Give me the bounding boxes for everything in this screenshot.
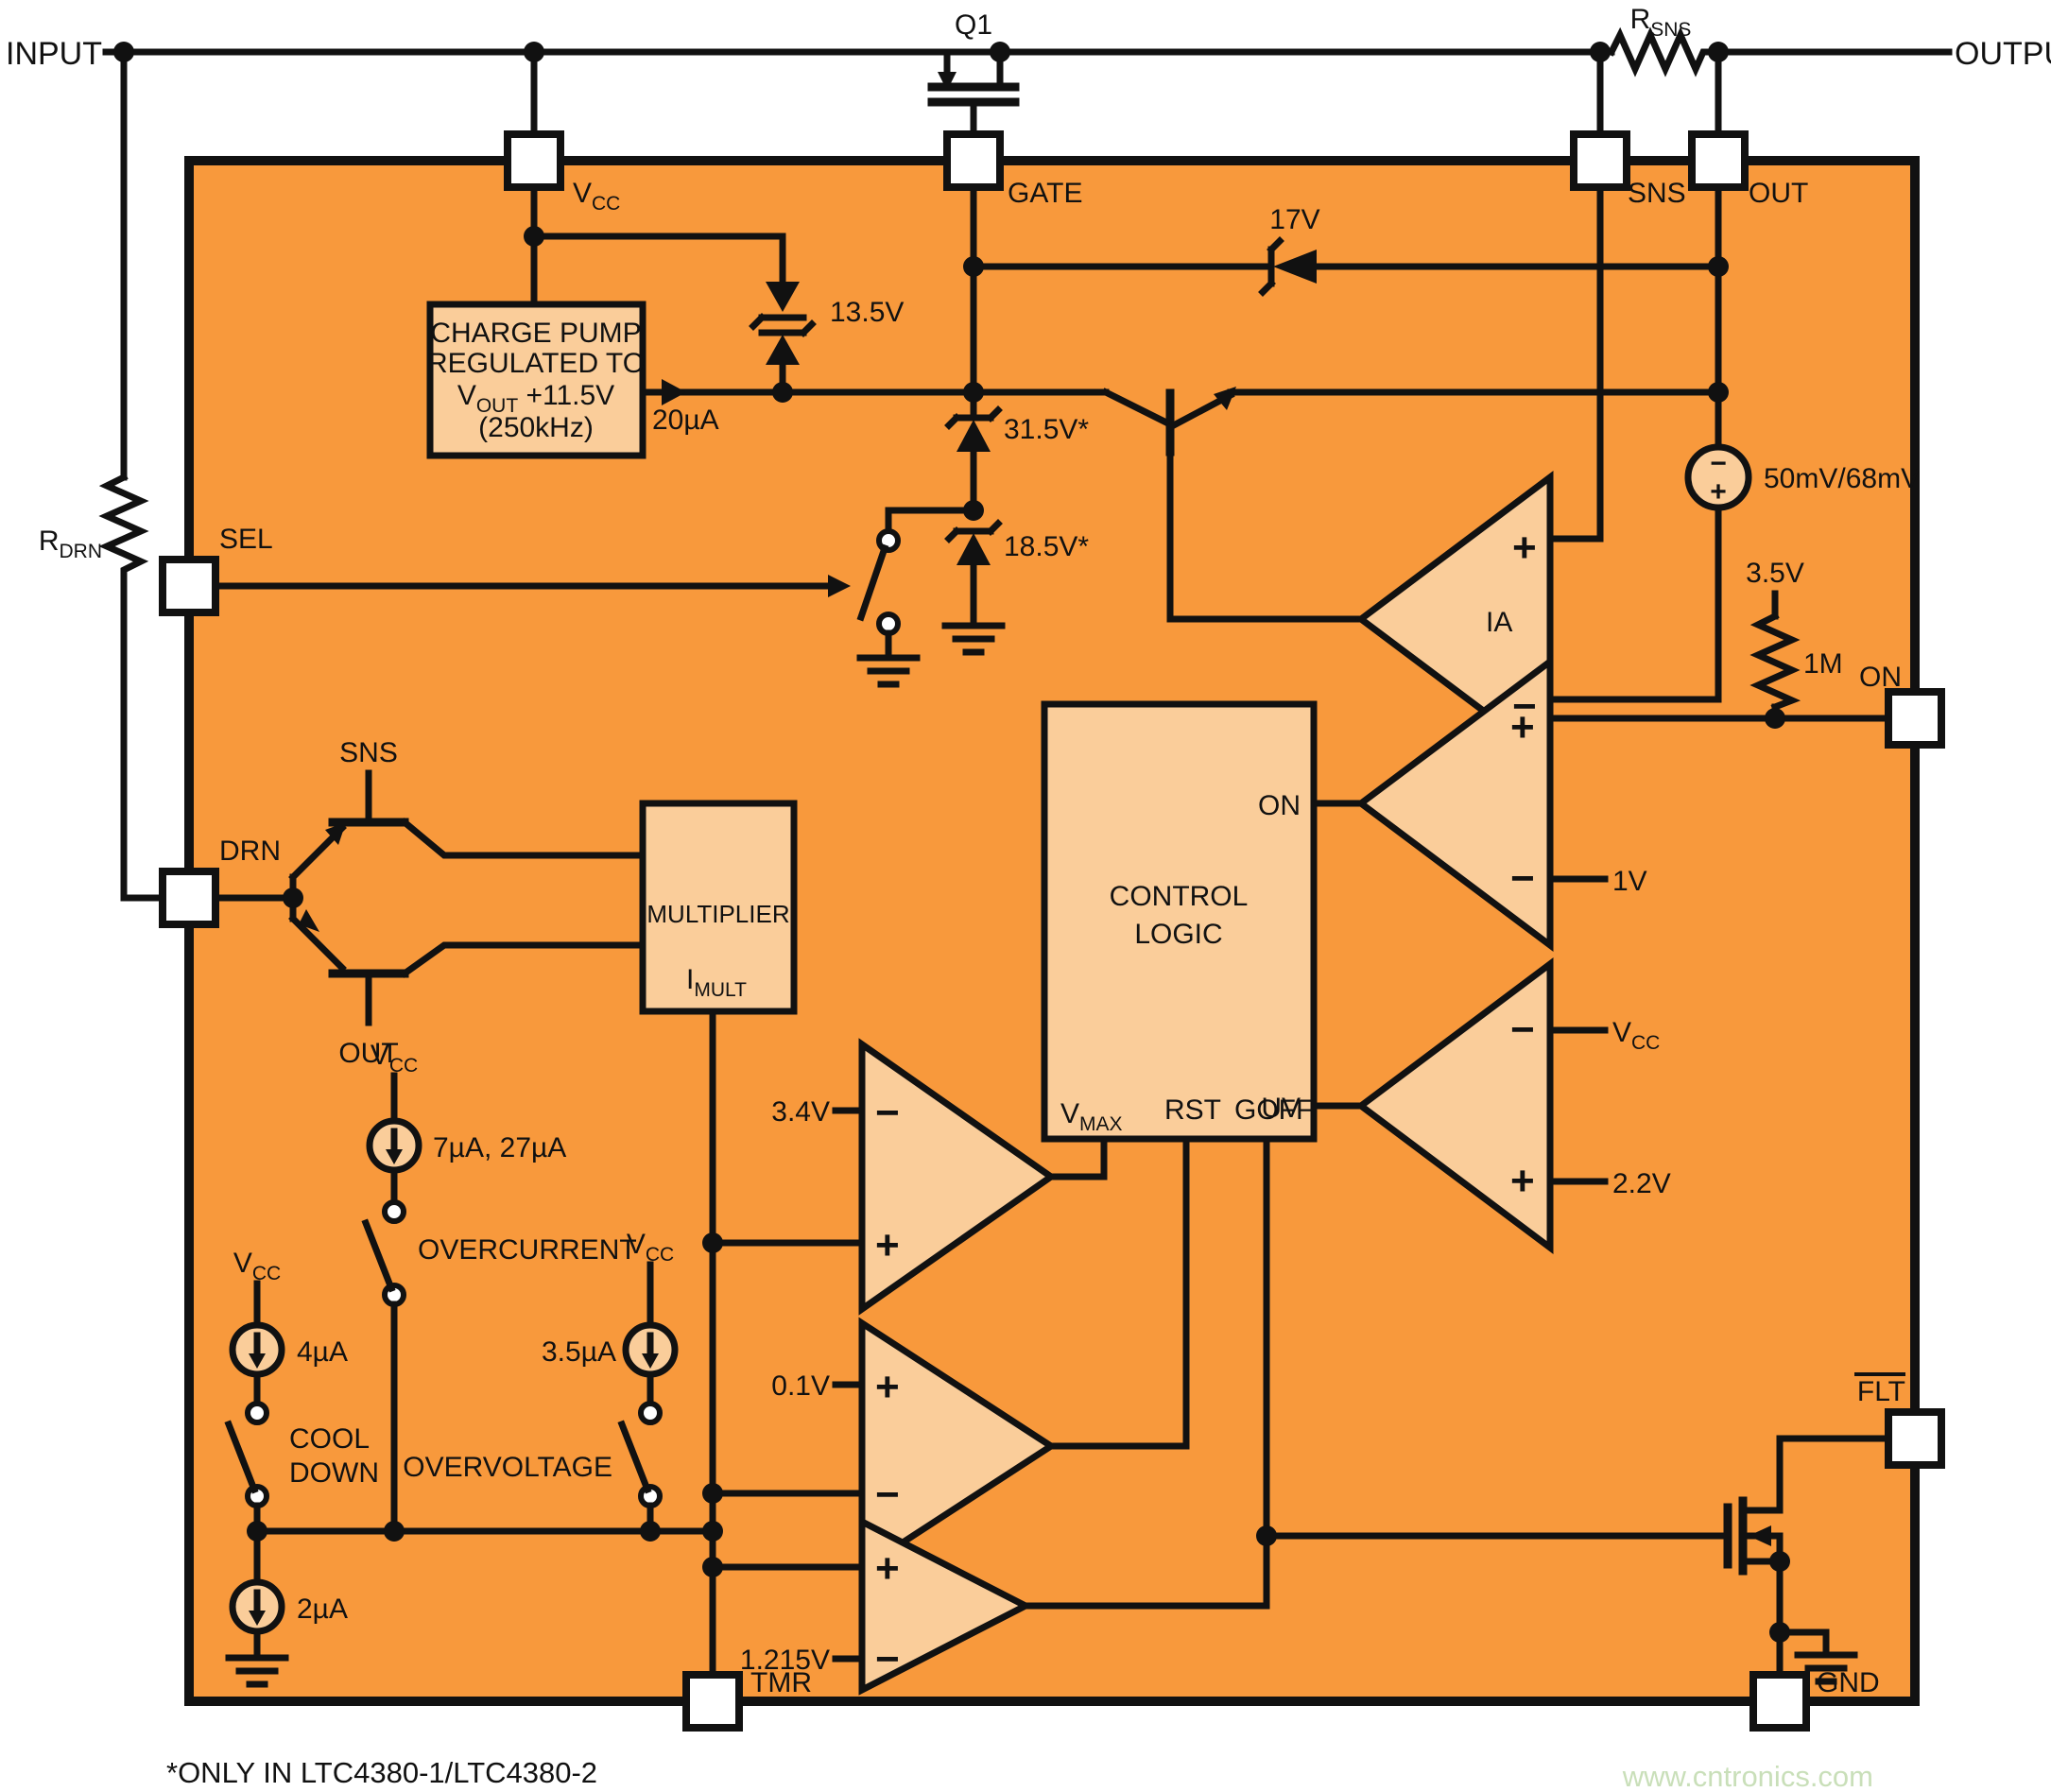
control-logic-line1: CONTROL (1110, 881, 1249, 912)
on-minus-sign: − (1510, 855, 1535, 902)
pin-drn-label: DRN (219, 836, 281, 867)
overcurrent-value-label: 7µA, 27µA (433, 1132, 566, 1163)
vmax-plus-sign: + (875, 1222, 900, 1268)
cooldown-switch-label-1: COOL (289, 1423, 370, 1455)
uv-plus-ref-label: 2.2V (1612, 1168, 1671, 1199)
ltc4380-block-diagram: INPUT OUTPUT Q1 RSNS RDRN VCC GATE SNS O… (0, 0, 2051, 1792)
control-logic-goff-port: GOFF (1234, 1094, 1313, 1126)
overvoltage-switch-label: OVERVOLTAGE (403, 1452, 612, 1483)
fltcmp-minus-sign: − (875, 1636, 900, 1682)
zener-13v5-label: 13.5V (830, 297, 904, 328)
ia-plus-sign: + (1512, 525, 1537, 571)
uv-plus-sign: + (1510, 1158, 1535, 1204)
q1-mosfet (932, 52, 1015, 134)
cooldown-value-label: 4µA (297, 1336, 348, 1368)
charge-pump-current-label: 20µA (652, 405, 719, 436)
overvoltage-contact-top (641, 1404, 660, 1422)
q1-label: Q1 (955, 9, 992, 41)
pin-sns-label: SNS (1628, 178, 1686, 209)
zener-17v-label: 17V (1269, 204, 1319, 235)
charge-pump-line2: REGULATED TO (427, 348, 645, 379)
pin-on (1888, 692, 1941, 745)
pin-flt (1888, 1412, 1941, 1465)
pin-gate (947, 134, 1000, 187)
pin-flt-label: FLT (1854, 1374, 1905, 1407)
on-minus-ref-label: 1V (1612, 866, 1647, 897)
on-pullup-voltage: 3.5V (1746, 558, 1804, 589)
rst-minus-sign: − (875, 1472, 900, 1518)
charge-pump-line1: CHARGE PUMP (430, 318, 641, 349)
control-logic-on-port: ON (1258, 790, 1301, 821)
pin-drn (163, 871, 215, 924)
control-logic-line2: LOGIC (1134, 919, 1222, 950)
pin-on-label: ON (1859, 662, 1902, 693)
zener-31v5-label: 31.5V* (1004, 414, 1089, 445)
pin-out (1692, 134, 1745, 187)
rdrn-wire-bottom (124, 577, 163, 898)
sense-sns-label: SNS (339, 737, 398, 768)
svg-text:FLT: FLT (1857, 1376, 1905, 1407)
uv-minus-sign: − (1510, 1007, 1535, 1053)
pin-sel-label: SEL (219, 524, 273, 555)
on-plus-sign: + (1510, 704, 1535, 750)
overvoltage-value-label: 3.5µA (542, 1336, 616, 1368)
charge-pump-line4: (250kHz) (478, 412, 594, 443)
pin-gnd-label: GND (1817, 1667, 1880, 1698)
cooldown-contact-top (248, 1404, 267, 1422)
vmax-minus-sign: − (875, 1090, 900, 1136)
rdrn-label: RDRN (39, 526, 102, 562)
rst-ref-label: 0.1V (771, 1370, 830, 1402)
offset-source-label: 50mV/68mV (1764, 463, 1920, 494)
timer-value-label: 2µA (297, 1594, 348, 1625)
rst-plus-sign: + (875, 1364, 900, 1410)
input-label: INPUT (6, 36, 102, 72)
pin-vcc (508, 134, 560, 187)
pin-gate-label: GATE (1008, 178, 1082, 209)
control-logic-rst-port: RST (1164, 1094, 1221, 1126)
pin-sel (163, 560, 215, 612)
rdrn-resistor (107, 477, 141, 577)
pin-gnd (1753, 1675, 1806, 1728)
output-label: OUTPUT (1955, 36, 2051, 72)
pin-tmr (686, 1675, 739, 1728)
fltcmp-ref-label: 1.215V (740, 1645, 830, 1676)
pin-sns (1574, 134, 1627, 187)
zener-18v5-label: 18.5V* (1004, 531, 1089, 562)
offset-source-plus: + (1710, 476, 1727, 508)
overcurrent-contact-top (385, 1202, 404, 1221)
multiplier-label: MULTIPLIER (646, 900, 789, 928)
schematic-page: INPUT OUTPUT Q1 RSNS RDRN VCC GATE SNS O… (0, 0, 2051, 1792)
vmax-ref-label: 3.4V (771, 1096, 830, 1128)
ia-label: IA (1486, 607, 1512, 638)
footnote: *ONLY IN LTC4380-1/LTC4380-2 (166, 1756, 597, 1789)
rsns-label: RSNS (1630, 4, 1692, 41)
offset-source-minus: − (1710, 448, 1727, 479)
overcurrent-switch-label: OVERCURRENT (418, 1234, 637, 1266)
on-pullup-resistor-label: 1M (1803, 648, 1843, 680)
cooldown-switch-label-2: DOWN (289, 1457, 379, 1489)
fltcmp-plus-sign: + (875, 1545, 900, 1592)
pin-out-label: OUT (1749, 178, 1808, 209)
